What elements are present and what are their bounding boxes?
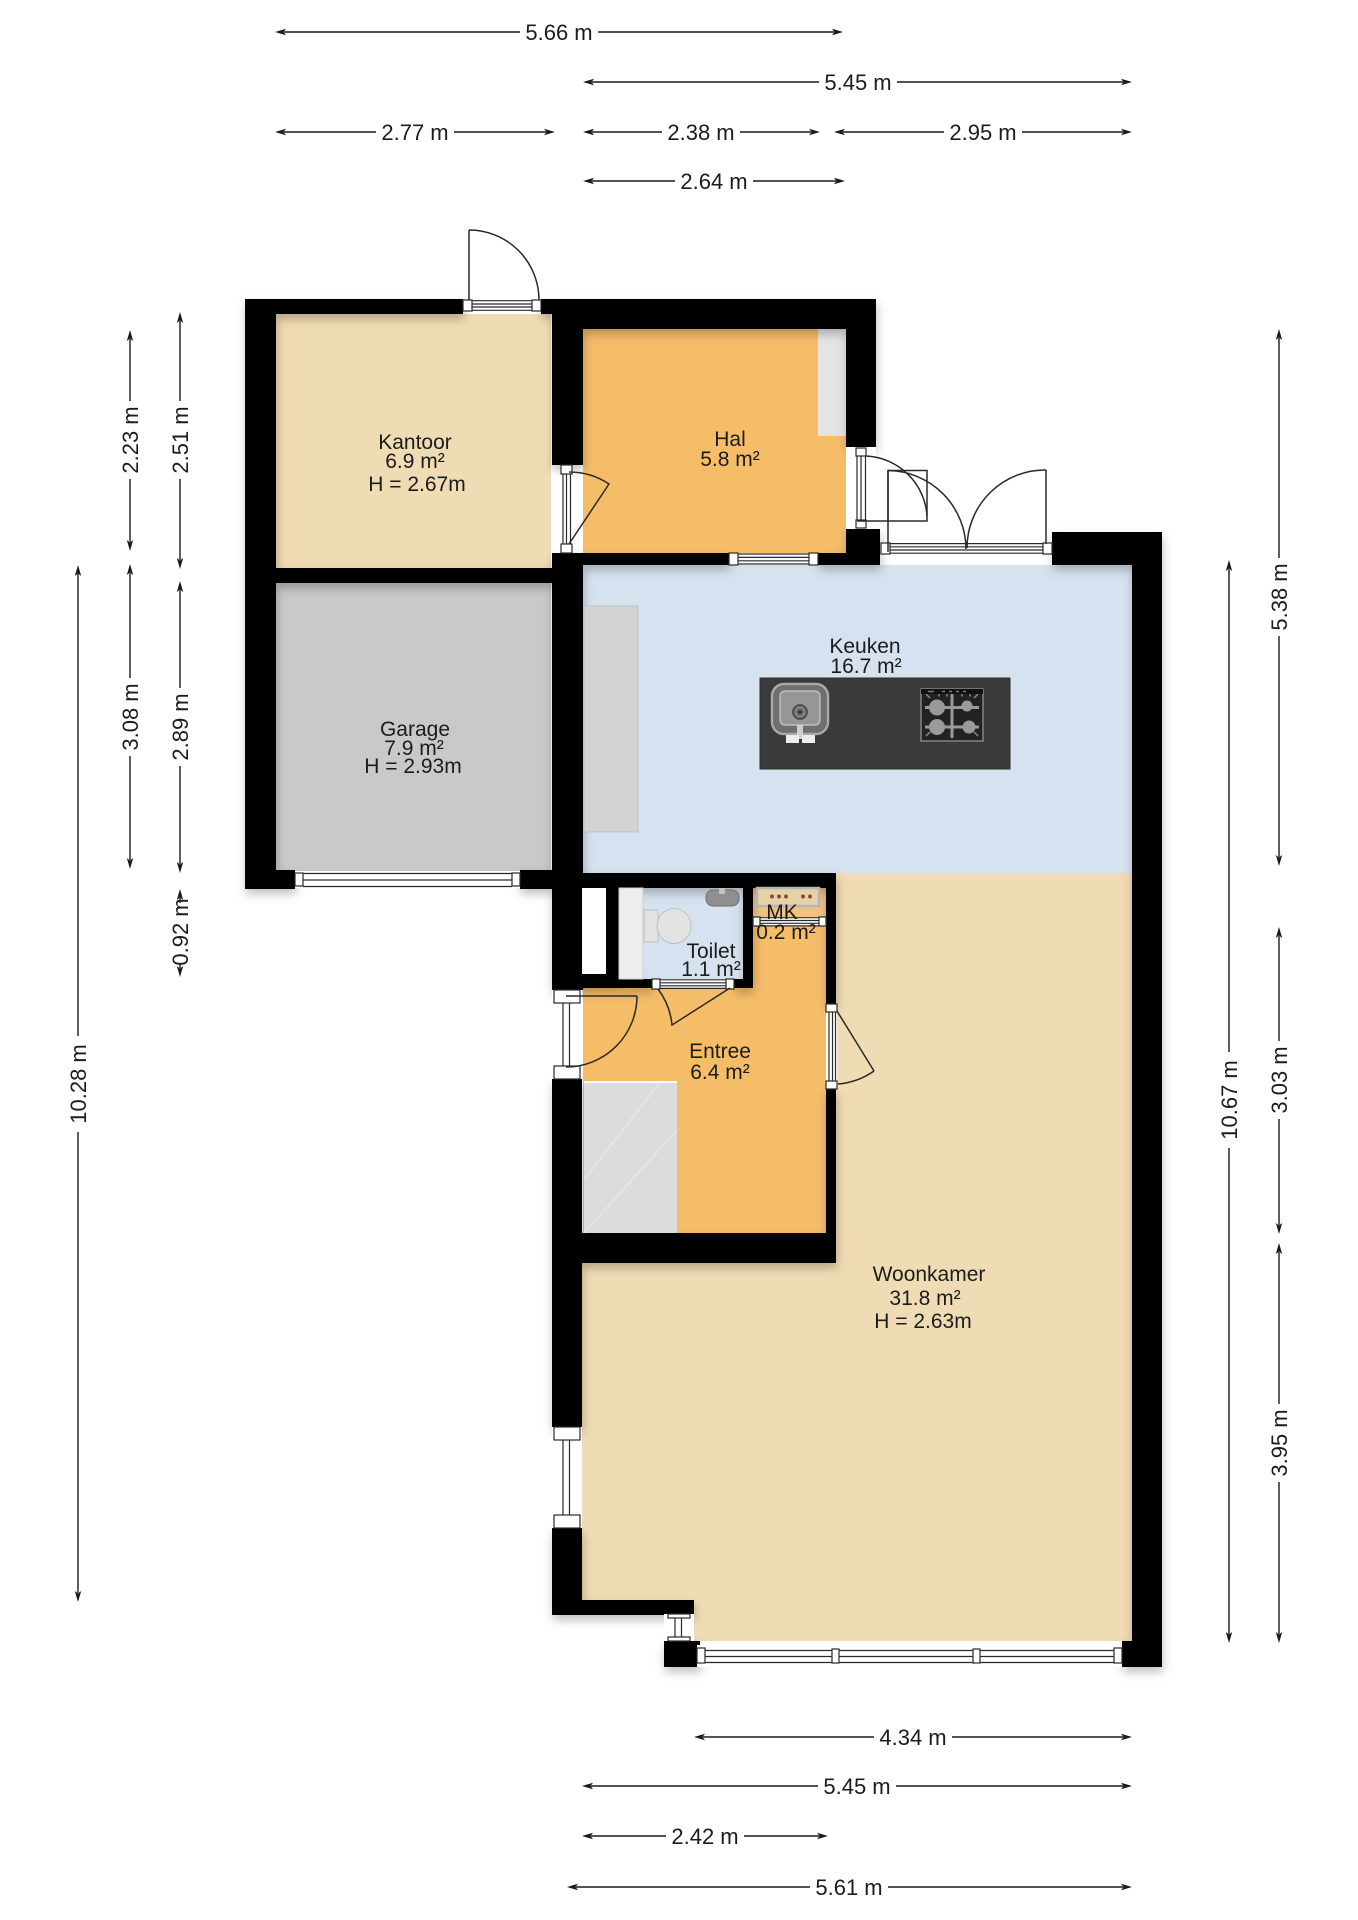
svg-text:H = 2.67m: H = 2.67m [368,473,465,496]
svg-text:3.08 m: 3.08 m [118,683,143,750]
svg-text:6.9 m²: 6.9 m² [385,450,445,473]
svg-text:Entree: Entree [689,1040,751,1063]
svg-text:2.95 m: 2.95 m [949,120,1016,145]
svg-text:0.92 m: 0.92 m [168,898,193,965]
svg-text:0.2 m²: 0.2 m² [756,921,816,944]
svg-text:16.7 m²: 16.7 m² [830,655,901,678]
svg-text:2.77 m: 2.77 m [381,120,448,145]
svg-text:10.67 m: 10.67 m [1217,1060,1242,1140]
svg-text:2.38 m: 2.38 m [667,120,734,145]
svg-text:H = 2.63m: H = 2.63m [874,1310,971,1333]
svg-text:5.45 m: 5.45 m [823,1774,890,1799]
svg-text:31.8 m²: 31.8 m² [889,1287,960,1310]
svg-text:H = 2.93m: H = 2.93m [364,755,461,778]
svg-text:2.89 m: 2.89 m [168,693,193,760]
svg-text:3.03 m: 3.03 m [1267,1046,1292,1113]
svg-text:5.66 m: 5.66 m [525,20,592,45]
svg-text:5.61 m: 5.61 m [815,1875,882,1900]
svg-text:5.45 m: 5.45 m [824,70,891,95]
svg-text:10.28 m: 10.28 m [66,1044,91,1124]
svg-text:5.38 m: 5.38 m [1267,563,1292,630]
svg-text:2.42 m: 2.42 m [671,1824,738,1849]
svg-text:6.4 m²: 6.4 m² [690,1061,750,1084]
svg-text:2.64 m: 2.64 m [680,169,747,194]
svg-text:5.8 m²: 5.8 m² [700,448,760,471]
svg-text:2.51 m: 2.51 m [168,406,193,473]
svg-text:1.1 m²: 1.1 m² [681,958,741,981]
svg-text:4.34 m: 4.34 m [879,1725,946,1750]
svg-text:Woonkamer: Woonkamer [873,1263,986,1286]
svg-text:3.95 m: 3.95 m [1267,1409,1292,1476]
svg-text:2.23 m: 2.23 m [118,406,143,473]
